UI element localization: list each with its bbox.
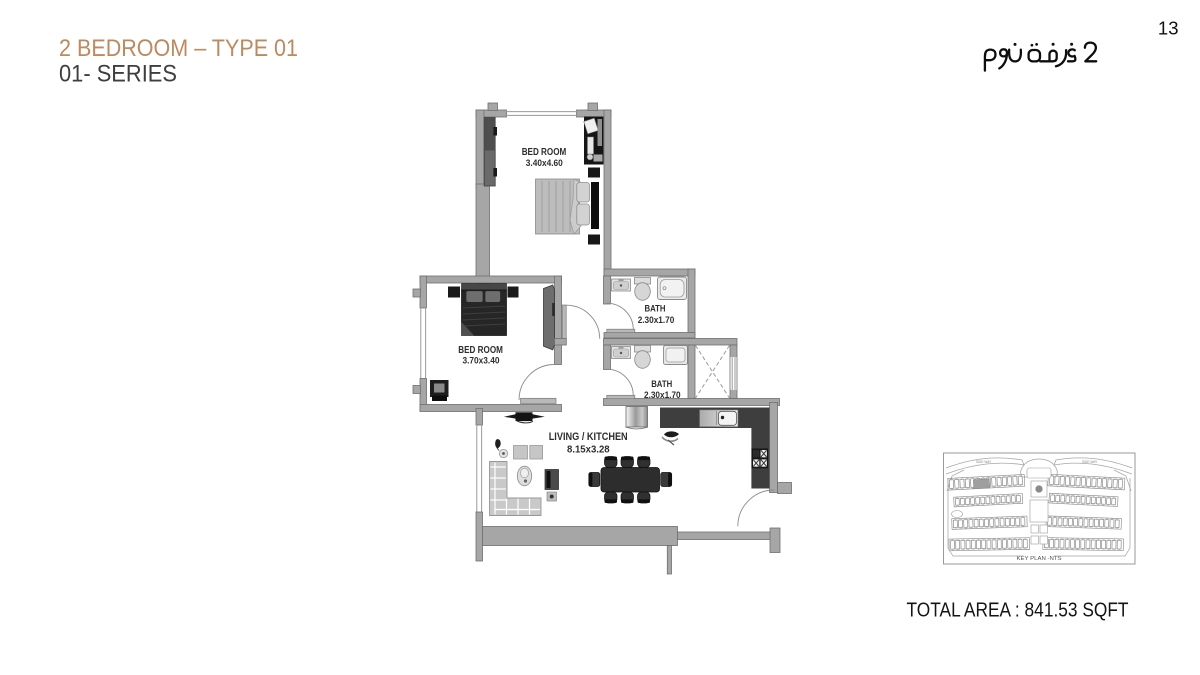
svg-text:SIDE WAY: SIDE WAY [976, 460, 992, 464]
svg-text:13: 13 [1158, 17, 1179, 38]
svg-text:BATH: BATH [651, 378, 672, 389]
svg-text:2.30x1.70: 2.30x1.70 [638, 314, 675, 325]
svg-text:LIVING / KITCHEN: LIVING / KITCHEN [549, 431, 628, 443]
svg-text:3.70x3.40: 3.70x3.40 [463, 355, 500, 366]
svg-text:01- SERIES: 01- SERIES [59, 61, 177, 88]
svg-text:TOTAL AREA : 841.53 SQFT: TOTAL AREA : 841.53 SQFT [907, 599, 1129, 621]
svg-text:KEY PLAN -NTS: KEY PLAN -NTS [1017, 556, 1062, 562]
svg-text:SIDE WAY: SIDE WAY [1082, 460, 1098, 464]
svg-text:3.40x4.60: 3.40x4.60 [526, 157, 563, 168]
svg-text:8.15x3.28: 8.15x3.28 [567, 445, 610, 456]
svg-text:2 BEDROOM – TYPE 01: 2 BEDROOM – TYPE 01 [59, 35, 298, 62]
svg-text:BATH: BATH [645, 303, 666, 314]
svg-text:2.30x1.70: 2.30x1.70 [644, 389, 681, 400]
